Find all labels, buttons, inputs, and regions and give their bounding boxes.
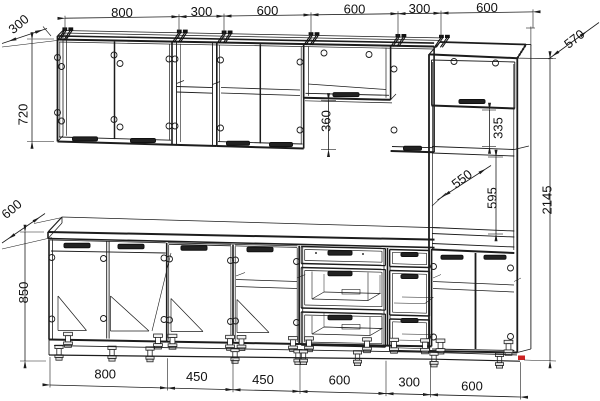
svg-text:360: 360: [319, 110, 334, 132]
svg-text:600: 600: [257, 3, 279, 18]
svg-text:2145: 2145: [540, 186, 555, 215]
svg-text:450: 450: [252, 372, 274, 387]
svg-text:300: 300: [409, 1, 431, 16]
svg-text:720: 720: [16, 104, 31, 126]
svg-text:300: 300: [191, 4, 213, 19]
svg-text:850: 850: [16, 282, 31, 304]
svg-text:335: 335: [491, 117, 506, 139]
svg-text:600: 600: [476, 0, 498, 15]
svg-text:600: 600: [344, 2, 366, 17]
svg-text:600: 600: [461, 379, 483, 394]
svg-text:600: 600: [329, 373, 351, 388]
svg-text:595: 595: [485, 187, 500, 209]
svg-text:300: 300: [398, 374, 420, 389]
svg-text:800: 800: [111, 5, 133, 20]
svg-text:800: 800: [94, 367, 116, 382]
svg-text:450: 450: [186, 369, 208, 384]
